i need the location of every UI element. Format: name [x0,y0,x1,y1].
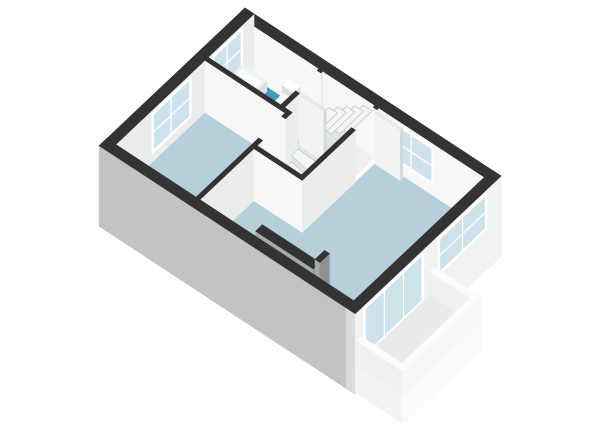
wall-hall-south-right [302,177,305,232]
wall-bathroom-east-front [278,108,282,163]
bedroom2-door-right [400,128,402,181]
floor-plan-canvas [0,0,600,424]
wall-bedroom1-east-a-right [286,116,290,171]
floor-plan-3d [0,0,600,424]
wall-se-front [346,308,355,395]
